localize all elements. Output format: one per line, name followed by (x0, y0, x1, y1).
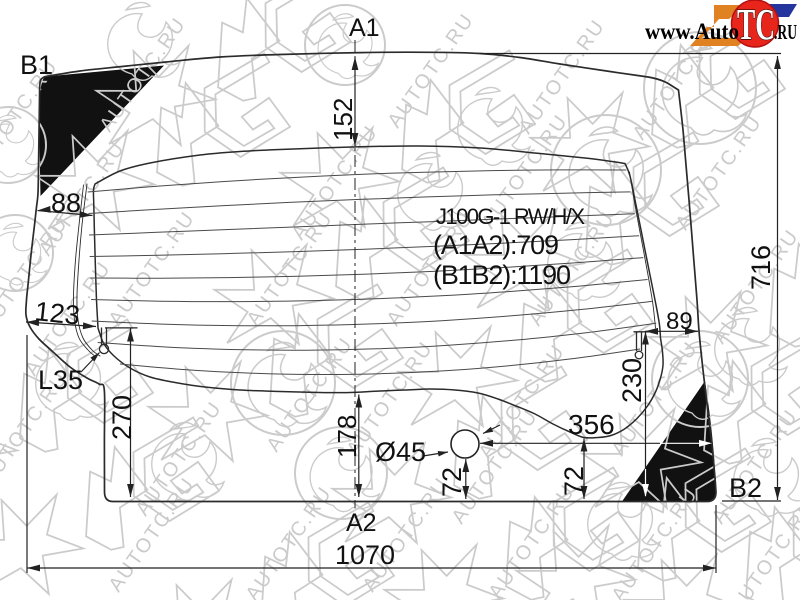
svg-text:(A1A2):709: (A1A2):709 (433, 230, 559, 260)
svg-text:B1: B1 (20, 50, 53, 80)
svg-text:270: 270 (107, 395, 137, 440)
svg-text:72: 72 (437, 467, 467, 497)
svg-text:230: 230 (617, 358, 647, 403)
svg-text:123: 123 (33, 296, 81, 331)
svg-text:.RU: .RU (774, 20, 797, 44)
svg-text:152: 152 (328, 98, 358, 141)
svg-text:www.Auto: www.Auto (645, 19, 739, 44)
svg-text:178: 178 (332, 415, 362, 458)
svg-text:B2: B2 (729, 473, 762, 503)
svg-text:1070: 1070 (335, 540, 395, 570)
svg-text:72: 72 (559, 466, 589, 496)
svg-text:356: 356 (568, 409, 615, 440)
svg-text:(B1B2):1190: (B1B2):1190 (433, 260, 571, 290)
svg-text:L35: L35 (38, 365, 83, 395)
svg-text:Ø45: Ø45 (375, 437, 426, 467)
svg-text:89: 89 (666, 308, 693, 335)
svg-text:TC: TC (737, 0, 775, 49)
svg-text:A1: A1 (349, 14, 380, 42)
svg-text:88: 88 (51, 188, 81, 218)
svg-text:J100G-1 RW/H/X: J100G-1 RW/H/X (436, 204, 585, 229)
svg-text:716: 716 (746, 245, 776, 290)
svg-text:A2: A2 (346, 509, 377, 537)
